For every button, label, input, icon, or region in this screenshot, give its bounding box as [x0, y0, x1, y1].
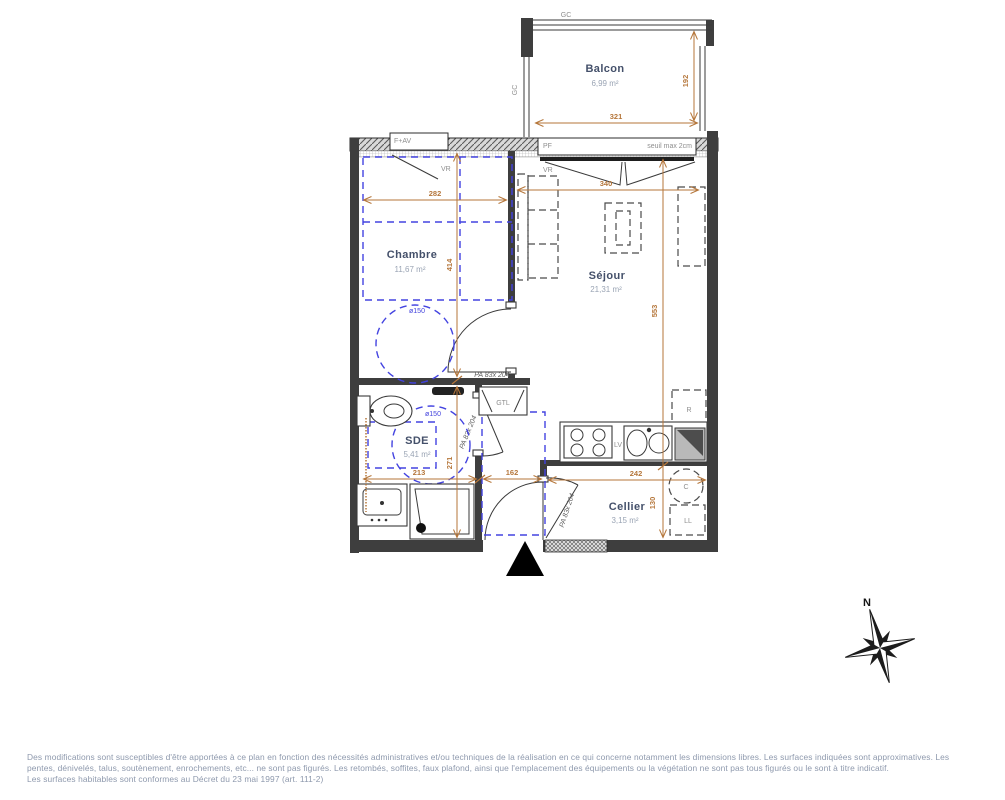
- roller-shutter-living: VR: [543, 167, 553, 174]
- window-bedroom-label: F+AV: [394, 138, 412, 145]
- vanity-drain: [380, 501, 384, 505]
- wall-bathroom-hall-bottom: [475, 456, 482, 540]
- table-inner: [616, 211, 630, 245]
- room-name-sde: SDE: [405, 435, 429, 447]
- turning-circle-bedroom: [376, 305, 454, 383]
- dim-balcony-width: 321: [610, 112, 623, 121]
- sofa-seat: [528, 176, 558, 278]
- dim-cellar-depth: 130: [648, 497, 657, 510]
- dim-entry-width: 162: [506, 468, 519, 477]
- room-name-chambre: Chambre: [387, 249, 437, 261]
- room-area-chambre: 11,67 m²: [395, 265, 426, 274]
- faucet: [647, 428, 651, 432]
- dim-balcony-depth: 192: [681, 75, 690, 88]
- room-name-balcon: Balcon: [585, 63, 624, 75]
- compass-shading: [835, 600, 924, 692]
- balcony: GC GC Balcon 6,99 m² 321 192: [512, 12, 714, 137]
- wall-bedroom-bathroom: [359, 378, 530, 385]
- disclaimer-line-2: pentes, dénivelés, talus, soutènement, e…: [27, 763, 992, 774]
- entrance-doormat: [545, 540, 607, 552]
- cooktop: [564, 426, 612, 458]
- compass-north-label: N: [863, 597, 871, 609]
- bedroom-door-spec: PA 83x 204: [474, 372, 510, 379]
- compass-rose: N: [835, 597, 924, 692]
- dishwasher-label: LV: [614, 442, 622, 449]
- room-area-sejour: 21,31 m²: [590, 285, 622, 294]
- room-area-balcon: 6,99 m²: [591, 79, 618, 88]
- toilet-tank: [357, 396, 370, 426]
- window-bedroom-swing: [392, 155, 438, 179]
- dim-cellar-width: 242: [630, 469, 643, 478]
- vanity-knob: [371, 519, 374, 522]
- fridge-label: R: [686, 407, 691, 414]
- dim-living-width: 340: [600, 179, 613, 188]
- cellar-door-swing: [546, 478, 578, 538]
- turning-circle-bedroom-label: ø150: [409, 308, 425, 315]
- bedroom-door-jamb-top: [506, 302, 516, 308]
- room-area-cellier: 3,15 m²: [611, 516, 638, 525]
- turning-circle-bathroom-label: ø150: [425, 411, 441, 418]
- french-window-swing: [545, 162, 695, 185]
- dimensions: 282 414 340 553 130 271 213 162 242: [364, 154, 705, 537]
- technical-duct: GTL: [479, 387, 527, 415]
- floor-plan-page: GC GC Balcon 6,99 m² 321 192 F+AV VR PF …: [0, 0, 1005, 800]
- gtl-label: GTL: [496, 400, 510, 407]
- disclaimer: Des modifications sont susceptibles d'êt…: [27, 752, 992, 784]
- toilet-bowl: [370, 396, 412, 426]
- balcony-railing-top: [533, 20, 712, 30]
- floor-plan-drawing: GC GC Balcon 6,99 m² 321 192 F+AV VR PF …: [0, 0, 1005, 800]
- toilet-hinge: [370, 409, 374, 413]
- openings: F+AV VR PF seuil max 2cm VR: [390, 133, 696, 185]
- dim-bedroom-width: 282: [429, 189, 442, 198]
- roller-shutter-bedroom: VR: [441, 166, 451, 173]
- water-heater-label: C: [683, 484, 688, 491]
- entrance-marker: [506, 541, 544, 576]
- dim-bathroom-depth: 271: [445, 457, 454, 470]
- vanity-knob: [378, 519, 381, 522]
- vanity-knob: [385, 519, 388, 522]
- balcony-railing-right: [700, 46, 705, 131]
- threshold-label: seuil max 2cm: [647, 143, 692, 150]
- disclaimer-line-1: Des modifications sont susceptibles d'êt…: [27, 752, 992, 763]
- dim-bathroom-width: 213: [413, 468, 426, 477]
- shower-drain: [416, 523, 426, 533]
- towel-radiator: [432, 387, 464, 395]
- balcony-railing-left: [524, 57, 529, 137]
- dim-bedroom-depth: 414: [445, 258, 454, 271]
- balcony-pier-left: [521, 18, 533, 57]
- washing-machine-label: LL: [684, 518, 692, 525]
- french-window-label: PF: [543, 143, 552, 150]
- room-area-sde: 5,41 m²: [403, 450, 430, 459]
- disclaimer-line-3: Les surfaces habitables sont conformes a…: [27, 774, 992, 785]
- railing-label-side: GC: [512, 85, 519, 96]
- wall-bottom-left: [350, 540, 483, 552]
- french-window-sill: [540, 157, 694, 161]
- dim-living-depth: 553: [650, 305, 659, 318]
- sideboard: [678, 187, 705, 266]
- balcony-pier-right: [706, 20, 714, 46]
- room-name-cellier: Cellier: [609, 501, 646, 513]
- cellar-door-spec: PA 83x 204: [559, 493, 577, 529]
- room-name-sejour: Séjour: [589, 270, 626, 282]
- kitchen: LV: [560, 422, 707, 462]
- entrance-door-swing: [485, 482, 543, 540]
- wall-right: [707, 131, 718, 545]
- railing-label-top: GC: [561, 12, 572, 19]
- sofa-cushions: [528, 210, 558, 244]
